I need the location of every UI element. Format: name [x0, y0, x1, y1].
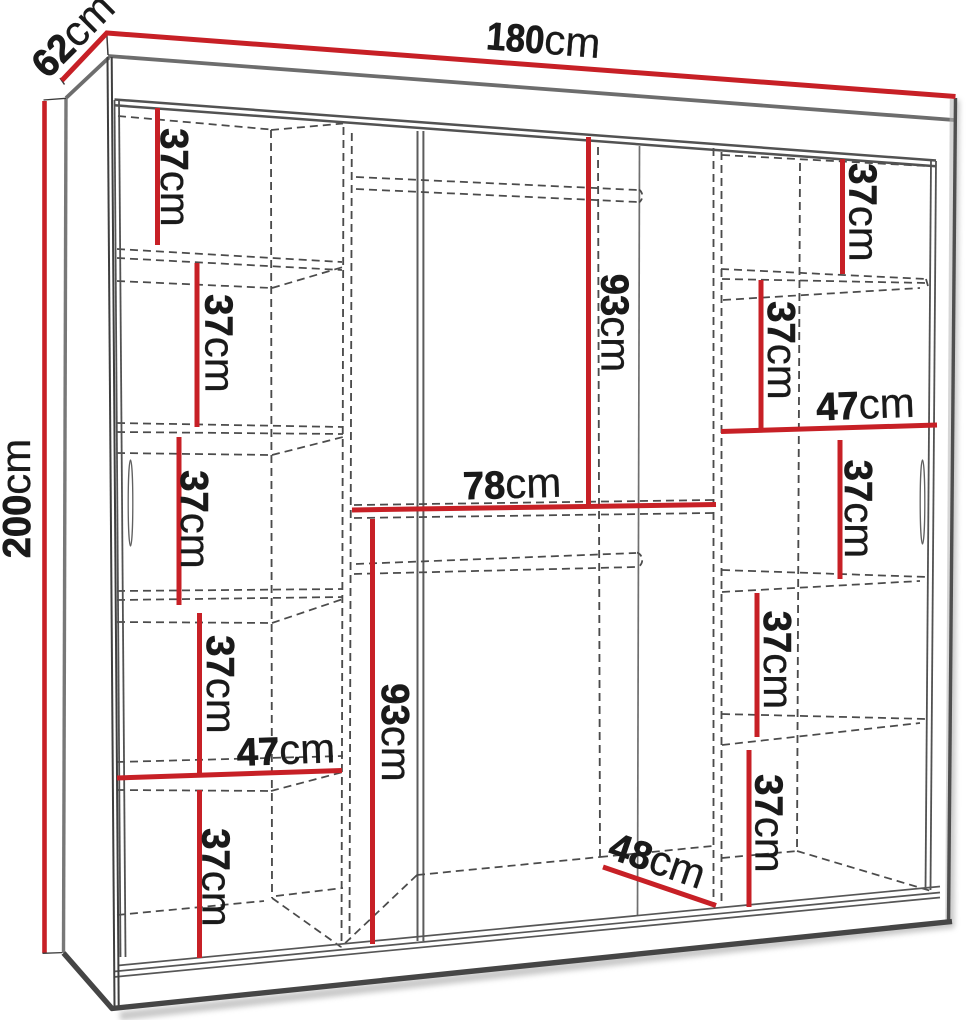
svg-text:37cm: 37cm [836, 460, 883, 558]
svg-text:47cm: 47cm [815, 379, 915, 429]
svg-text:47cm: 47cm [236, 724, 336, 774]
svg-text:37cm: 37cm [172, 470, 219, 568]
svg-text:37cm: 37cm [152, 128, 199, 226]
svg-text:180cm: 180cm [485, 11, 602, 67]
svg-text:37cm: 37cm [759, 301, 806, 399]
svg-text:37cm: 37cm [841, 163, 888, 261]
svg-text:37cm: 37cm [198, 635, 245, 733]
svg-text:78cm: 78cm [462, 459, 562, 509]
svg-text:37cm: 37cm [194, 828, 241, 926]
svg-text:93cm: 93cm [373, 683, 420, 781]
svg-text:200cm: 200cm [0, 439, 39, 559]
svg-text:93cm: 93cm [593, 274, 640, 372]
svg-text:37cm: 37cm [747, 774, 794, 872]
svg-text:37cm: 37cm [197, 294, 244, 392]
svg-text:37cm: 37cm [755, 611, 802, 709]
